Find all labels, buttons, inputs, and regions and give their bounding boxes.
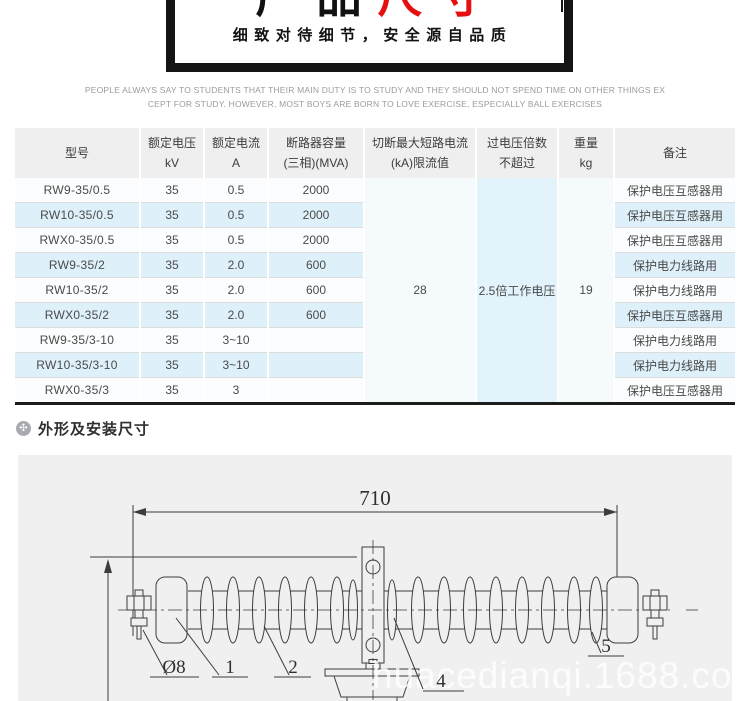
intro-text: PEOPLE ALWAYS SAY TO STUDENTS THAT THEIR… (0, 84, 750, 111)
cell-model: RWX0-35/3 (15, 378, 140, 404)
cell-remark: 保护电压互感器用 (614, 378, 735, 404)
header-rated-current: 额定电流A (204, 128, 268, 178)
cell-voltage: 35 (140, 303, 204, 328)
cell-model: RW10-35/2 (15, 278, 140, 303)
cell-voltage: 35 (140, 328, 204, 353)
cell-voltage: 35 (140, 228, 204, 253)
cell-remark: 保护电压互感器用 (614, 303, 735, 328)
cell-capacity: 2000 (268, 203, 364, 228)
watermark-text: huacedianqi.1688.com (372, 655, 732, 696)
table-header-row: 型号 额定电压kV 额定电流A 断路器容量(三相)(MVA) 切断最大短路电流(… (15, 128, 735, 178)
cell-current: 0.5 (204, 203, 268, 228)
cell-overvoltage-merged: 2.5倍工作电压 (476, 178, 558, 404)
callout-part1-label: 1 (225, 657, 235, 678)
cell-current: 0.5 (204, 178, 268, 203)
cell-capacity: 2000 (268, 178, 364, 203)
section-header: ✣ 外形及安装尺寸 (16, 418, 150, 439)
cell-current: 3 (204, 378, 268, 404)
cell-current: 2.0 (204, 303, 268, 328)
cell-remark: 保护电力线路用 (614, 353, 735, 378)
cell-capacity (268, 353, 364, 378)
cell-current: 2.0 (204, 278, 268, 303)
cell-current: 3~10 (204, 328, 268, 353)
cell-voltage: 35 (140, 178, 204, 203)
technical-drawing: 710 (18, 455, 732, 701)
callout-diameter-label: Ø8 (162, 657, 185, 678)
header-model: 型号 (15, 128, 140, 178)
cell-capacity: 600 (268, 253, 364, 278)
cell-remark: 保护电压互感器用 (614, 203, 735, 228)
intro-line-2: CEPT FOR STUDY. HOWEVER, MOST BOYS ARE B… (0, 98, 750, 112)
cell-model: RW9-35/3-10 (15, 328, 140, 353)
cell-model: RW9-35/2 (15, 253, 140, 278)
callout-part4-label: 4 (436, 671, 446, 692)
cell-weight-merged: 19 (558, 178, 614, 404)
section-bullet-icon: ✣ (16, 421, 31, 436)
cell-remark: 保护电压互感器用 (614, 228, 735, 253)
banner-corner-mark (561, 0, 563, 12)
cell-current: 2.0 (204, 253, 268, 278)
cell-remark: 保护电力线路用 (614, 328, 735, 353)
cell-voltage: 35 (140, 378, 204, 404)
cell-current: 3~10 (204, 353, 268, 378)
header-breaker-capacity: 断路器容量(三相)(MVA) (268, 128, 364, 178)
cell-model: RWX0-35/0.5 (15, 228, 140, 253)
cell-voltage: 35 (140, 203, 204, 228)
cell-short-circuit-merged: 28 (364, 178, 476, 404)
header-overvoltage: 过电压倍数不超过 (476, 128, 558, 178)
cell-remark: 保护电力线路用 (614, 278, 735, 303)
banner-subtitle: 细致对待细节，安全源自品质 (175, 24, 564, 45)
cell-capacity (268, 328, 364, 353)
cell-model: RW10-35/3-10 (15, 353, 140, 378)
product-size-banner: 产品尺寸 细致对待细节，安全源自品质 (166, 0, 573, 72)
header-max-short-circuit: 切断最大短路电流(kA)限流值 (364, 128, 476, 178)
cell-voltage: 35 (140, 278, 204, 303)
dimension-drawing-panel: 710 (18, 455, 732, 701)
product-spec-page: 产品尺寸 细致对待细节，安全源自品质 PEOPLE ALWAYS SAY TO … (0, 0, 750, 701)
callout-part2-label: 2 (288, 657, 298, 678)
cell-model: RW9-35/0.5 (15, 178, 140, 203)
cell-voltage: 35 (140, 253, 204, 278)
banner-title: 产品尺寸 (175, 0, 564, 23)
cell-remark: 保护电压互感器用 (614, 178, 735, 203)
cell-current: 0.5 (204, 228, 268, 253)
header-weight: 重量kg (558, 128, 614, 178)
cell-remark: 保护电力线路用 (614, 253, 735, 278)
dimension-710-label: 710 (359, 486, 391, 510)
section-title: 外形及安装尺寸 (38, 418, 150, 439)
cell-voltage: 35 (140, 353, 204, 378)
cell-model: RWX0-35/2 (15, 303, 140, 328)
cell-capacity: 600 (268, 278, 364, 303)
cell-model: RW10-35/0.5 (15, 203, 140, 228)
cell-capacity: 2000 (268, 228, 364, 253)
header-rated-voltage: 额定电压kV (140, 128, 204, 178)
cell-capacity: 600 (268, 303, 364, 328)
banner-title-black: 产品 (255, 0, 377, 22)
table-row: RW9-35/0.5 35 0.5 2000 28 2.5倍工作电压 19 保护… (15, 178, 735, 203)
intro-line-1: PEOPLE ALWAYS SAY TO STUDENTS THAT THEIR… (0, 84, 750, 98)
banner-title-red: 尺寸 (378, 0, 500, 22)
spec-table: 型号 额定电压kV 额定电流A 断路器容量(三相)(MVA) 切断最大短路电流(… (15, 128, 735, 405)
cell-capacity (268, 378, 364, 404)
header-remarks: 备注 (614, 128, 735, 178)
callout-part5-label: 5 (601, 636, 611, 657)
